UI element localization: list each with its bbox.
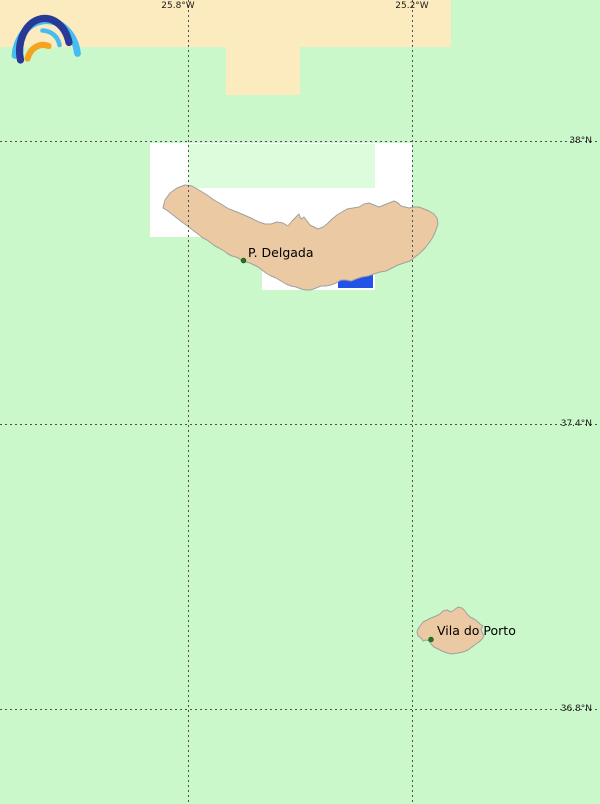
lat-label-38n: 38°N: [542, 136, 592, 146]
lat-label-36-8n: 36.8°N: [542, 704, 592, 714]
place-label-p-delgada: P. Delgada: [248, 245, 314, 260]
chart-canvas[interactable]: 25.8°W 25.2°W 38°N 37.4°N 36.8°N P. Delg…: [0, 0, 600, 804]
coverage-green-inset: [188, 144, 375, 188]
chart-graphics: [0, 0, 600, 804]
graticule: [0, 0, 600, 804]
coverage-cream-notch: [226, 47, 300, 95]
town-dot-vila-do-porto: [429, 637, 434, 642]
lon-label-25-2w: 25.2°W: [390, 1, 434, 11]
town-dot-p-delgada: [241, 258, 246, 263]
lat-label-37-4n: 37.4°N: [542, 419, 592, 429]
lon-label-25-8w: 25.8°W: [156, 1, 200, 11]
place-label-vila-do-porto: Vila do Porto: [437, 623, 516, 638]
